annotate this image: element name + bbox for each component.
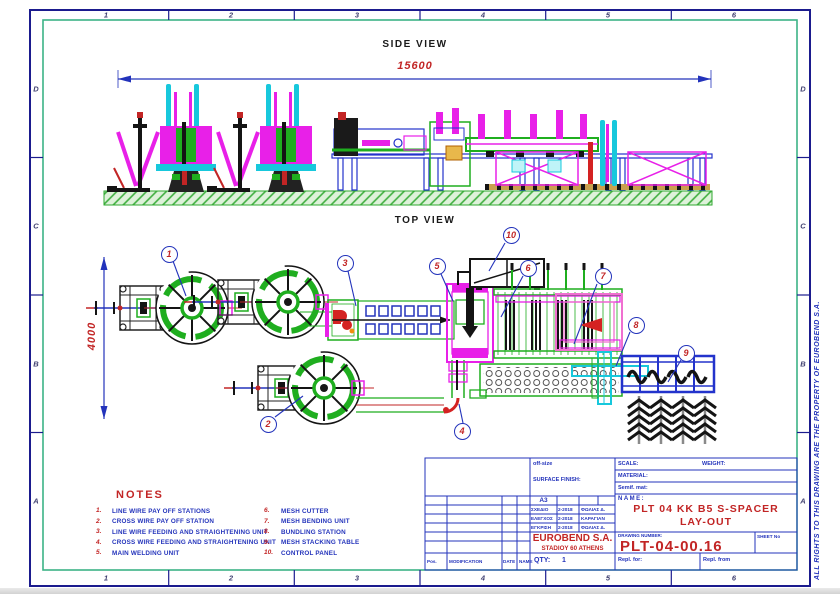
note-text: LINE WIRE FEEDING AND STRAIGHTENING UNIT — [112, 529, 268, 536]
balloon-1: 1 — [161, 246, 178, 263]
copyright-notice: ALL RIGHTS TO THIS DRAWING ARE THE PROPE… — [814, 288, 830, 580]
sign-row-label: ΕΛΕΓΧΟΣ — [531, 516, 553, 521]
zone-row: A — [800, 497, 805, 506]
note-number: 8. — [264, 528, 269, 535]
note-number: 2. — [96, 518, 101, 525]
zone-col: 3 — [355, 574, 359, 583]
zone-col: 5 — [606, 11, 610, 20]
drawing-number: PLT-04-00.16 — [620, 538, 723, 555]
zone-col: 2 — [229, 11, 233, 20]
zone-row: C — [33, 222, 38, 231]
sign-row-name: ΚΑΡΑΓΙΑΝ — [581, 516, 605, 521]
zone-col: 2 — [229, 574, 233, 583]
drawing-name-line2: LAY-OUT — [615, 516, 797, 528]
note-number: 7. — [264, 518, 269, 525]
note-text: MESH CUTTER — [281, 508, 329, 515]
zone-row: A — [33, 497, 38, 506]
balloon-6: 6 — [520, 260, 537, 277]
zone-col: 3 — [355, 11, 359, 20]
balloon-4: 4 — [454, 423, 471, 440]
balloon-9-number: 9 — [683, 348, 688, 358]
off-size-label: off-size — [533, 461, 552, 467]
note-number: 10. — [264, 549, 273, 556]
note-number: 5. — [96, 549, 101, 556]
surface-finish-label: SURFACE FINISH: — [533, 477, 581, 483]
note-number: 3. — [96, 528, 101, 535]
balloon-8: 8 — [628, 317, 645, 334]
scan-shadow — [0, 588, 840, 594]
balloon-7: 7 — [595, 268, 612, 285]
zone-row: C — [800, 222, 805, 231]
sign-row-date: 2-2018 — [558, 507, 573, 512]
side-view-dimension: 15600 — [350, 60, 480, 72]
sign-row-date: 2-2018 — [558, 516, 573, 521]
top-view-label: TOP VIEW — [360, 215, 490, 226]
note-text: CONTROL PANEL — [281, 550, 337, 557]
rev-header-modification: MODIFICATION — [449, 559, 482, 564]
note-text: MAIN WELDING UNIT — [112, 550, 179, 557]
side-view-drawing — [104, 84, 712, 205]
weight-label: WEIGHT: — [702, 461, 725, 467]
company-address: STADIOY 60 ATHENS — [530, 545, 615, 552]
zone-col: 4 — [481, 574, 485, 583]
balloon-10: 10 — [503, 227, 520, 244]
zone-col: 1 — [104, 574, 108, 583]
balloon-1-number: 1 — [166, 249, 171, 259]
balloon-5: 5 — [429, 258, 446, 275]
zone-col: 6 — [732, 11, 736, 20]
zone-col: 1 — [104, 11, 108, 20]
note-text: LINE WIRE PAY OFF STATIONS — [112, 508, 210, 515]
balloon-2: 2 — [260, 416, 277, 433]
paper-format: A3 — [530, 497, 557, 504]
zone-col: 4 — [481, 11, 485, 20]
material-label: MATERIAL: — [618, 473, 648, 479]
note-text: BUNDLING STATION — [281, 529, 346, 536]
name-label: NAME: — [618, 496, 645, 502]
sign-row-label: ΣΧΕΔΙΟ — [531, 507, 548, 512]
repl-from-label: Repl. from — [703, 557, 730, 563]
zone-row: D — [33, 85, 38, 94]
note-text: MESH STACKING TABLE — [281, 539, 359, 546]
notes-title: NOTES — [116, 489, 164, 501]
zone-col: 6 — [732, 574, 736, 583]
zone-row: B — [33, 360, 38, 369]
repl-for-label: Repl. for: — [618, 557, 642, 563]
semif-mat-label: Semif. mat: — [618, 485, 648, 491]
sign-row-date: 2-2018 — [558, 525, 573, 530]
balloon-3-number: 3 — [342, 258, 347, 268]
sign-row-name: ΦΩΛΙΑΣ Δ. — [581, 507, 605, 512]
top-view-dimension: 4000 — [86, 306, 98, 366]
sign-row-name: ΦΩΛΙΑΣ Δ. — [581, 525, 605, 530]
balloon-10-number: 10 — [506, 230, 516, 240]
note-number: 6. — [264, 507, 269, 514]
zone-row: D — [800, 85, 805, 94]
note-text: MESH BENDING UNIT — [281, 518, 350, 525]
balloon-7-number: 7 — [600, 271, 605, 281]
drawing-sheet: 1 2 3 4 5 6 1 2 3 4 5 6 D C B A D C B A … — [0, 0, 840, 594]
side-view-label: SIDE VIEW — [350, 39, 480, 50]
zone-col: 5 — [606, 574, 610, 583]
balloon-2-number: 2 — [265, 419, 270, 429]
note-text: CROSS WIRE PAY OFF STATION — [112, 518, 214, 525]
company-name: EUROBEND S.A. — [530, 533, 615, 544]
note-text: CROSS WIRE FEEDING AND STRAIGHTENING UNI… — [112, 539, 276, 546]
rev-header-name: NAME — [519, 559, 533, 564]
balloon-3: 3 — [337, 255, 354, 272]
scale-label: SCALE: — [618, 461, 638, 467]
note-number: 4. — [96, 539, 101, 546]
zone-row: B — [800, 360, 805, 369]
balloon-8-number: 8 — [633, 320, 638, 330]
rev-header-date: DATE — [503, 559, 515, 564]
drawing-name-line1: PLT 04 KK B5 S-SPACER — [615, 503, 797, 515]
sign-row-label: ΕΓΚΡΙΣΗ — [531, 525, 551, 530]
balloon-4-number: 4 — [459, 426, 464, 436]
note-number: 1. — [96, 507, 101, 514]
sheet-no-label: SHEET No — [757, 534, 780, 539]
note-number: 9. — [264, 539, 269, 546]
qty-label: QTY: — [534, 557, 550, 564]
qty-value: 1 — [562, 557, 566, 564]
balloon-9: 9 — [678, 345, 695, 362]
balloon-5-number: 5 — [434, 261, 439, 271]
top-view-drawing — [86, 243, 716, 444]
rev-header-pos: Pos. — [427, 559, 437, 564]
balloon-6-number: 6 — [525, 263, 530, 273]
